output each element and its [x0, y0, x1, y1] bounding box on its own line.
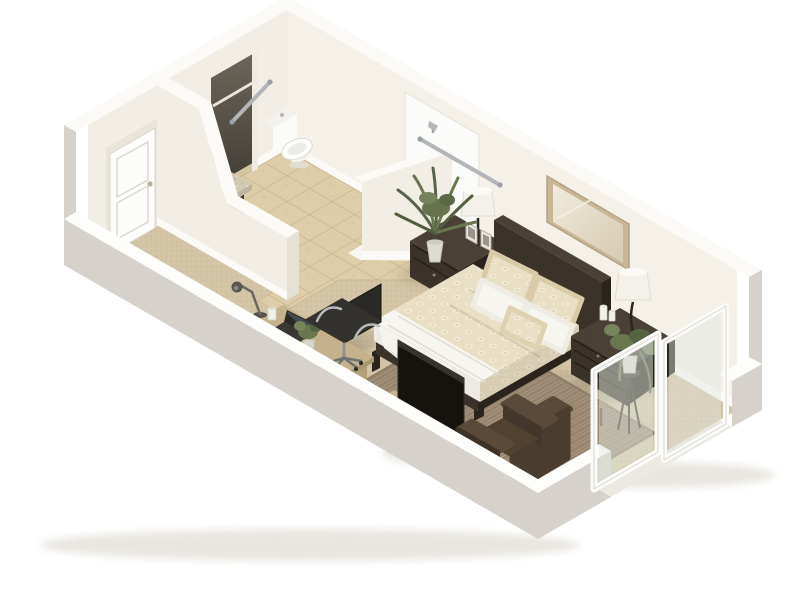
wall-right-endcap — [749, 270, 762, 371]
closet-jamb — [252, 50, 258, 172]
ground-shadow — [40, 529, 580, 561]
floorplan-stage — [0, 0, 800, 600]
palm-pot — [427, 242, 443, 262]
door-knob — [147, 181, 152, 186]
toilet-flush-button — [280, 113, 284, 117]
floorplan-rendering — [0, 0, 800, 600]
desk-cup — [268, 306, 276, 320]
